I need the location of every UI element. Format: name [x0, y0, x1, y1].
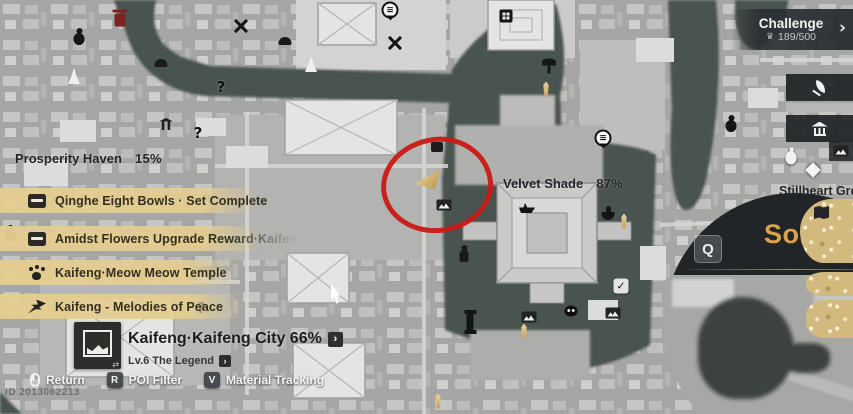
hotkey-return[interactable]: Return [30, 373, 85, 387]
hotkey-poi-filter[interactable]: R POI Filter [107, 372, 182, 388]
challenge-title: Challenge [743, 16, 839, 32]
quest-banner-qinghe[interactable]: Qinghe Eight Bowls · Set Complete [0, 188, 258, 213]
mouse-icon [30, 373, 40, 387]
hotkey-label: POI Filter [129, 373, 182, 387]
side-entry-gallery[interactable] [829, 141, 853, 161]
region-name: Velvet Shade [503, 176, 583, 191]
side-entry-tea[interactable] [786, 74, 853, 101]
paw-icon [28, 266, 46, 280]
region-title-text: Kaifeng·Kaifeng City 66% [128, 330, 322, 348]
quest-banner-label: Qinghe Eight Bowls · Set Complete [55, 194, 267, 208]
hotkey-label: Return [46, 373, 85, 387]
challenge-count: 189/500 [778, 31, 816, 43]
hotkey-bar: Return R POI Filter V Material Tracking [30, 372, 324, 388]
region-subtitle-text: Lv.6 The Legend [128, 355, 214, 367]
quest-banner-label: Kaifeng - Melodies of Peace [55, 300, 223, 314]
hotkey-material-tracking[interactable]: V Material Tracking [204, 372, 324, 388]
region-percent: 15% [135, 151, 162, 166]
hotkey-label: Material Tracking [226, 373, 324, 387]
side-entry-divider [786, 103, 853, 113]
chest-icon [28, 232, 46, 246]
folded-map-icon [814, 206, 829, 219]
quest-banner-label: Amidst Flowers Upgrade Reward·Kaifeng [55, 232, 305, 246]
city-emblem-icon[interactable]: ⇄ [74, 322, 121, 369]
quest-banner-label: Kaifeng·Meow Meow Temple [55, 266, 227, 280]
bird-icon [28, 300, 46, 314]
gold-banner [800, 199, 853, 263]
game-map-screen: ???≡≡✓ Prosperity Haven 15% Velvet Shade… [0, 0, 853, 414]
quest-banner-melodies[interactable]: Kaifeng - Melodies of Peace [0, 294, 242, 319]
side-entry-temple[interactable] [786, 115, 853, 142]
key-v-badge: V [204, 372, 220, 388]
map-label-velvet-shade: Velvet Shade 87% [503, 176, 623, 191]
region-title[interactable]: Kaifeng·Kaifeng City 66% › [128, 330, 343, 348]
chevron-right-icon[interactable]: › [219, 355, 231, 367]
gold-banner-strip [806, 300, 853, 338]
region-name: Prosperity Haven [15, 151, 122, 166]
chest-icon [28, 194, 46, 208]
gold-banner-strip [806, 272, 853, 296]
leaf-icon [812, 80, 828, 95]
swap-icon: ⇄ [112, 360, 119, 369]
challenge-emblem-icon: ♛ [766, 32, 774, 42]
chevron-right-icon[interactable]: › [328, 332, 343, 347]
watermark: ID 2013062213 [5, 387, 80, 398]
key-q-badge[interactable]: Q [694, 235, 722, 263]
temple-icon [812, 122, 828, 136]
key-r-badge: R [107, 372, 123, 388]
quest-banner-amidst-flowers[interactable]: Amidst Flowers Upgrade Reward·Kaifeng [0, 226, 262, 251]
chevron-right-icon[interactable]: › [839, 18, 853, 41]
quest-banner-meow-temple[interactable]: Kaifeng·Meow Meow Temple [0, 260, 238, 285]
region-percent: 87% [596, 176, 623, 191]
challenge-panel[interactable]: Challenge ♛ 189/500 › [731, 9, 853, 50]
map-label-prosperity-haven: Prosperity Haven 15% [15, 151, 162, 166]
region-subtitle[interactable]: Lv.6 The Legend › [128, 355, 231, 367]
